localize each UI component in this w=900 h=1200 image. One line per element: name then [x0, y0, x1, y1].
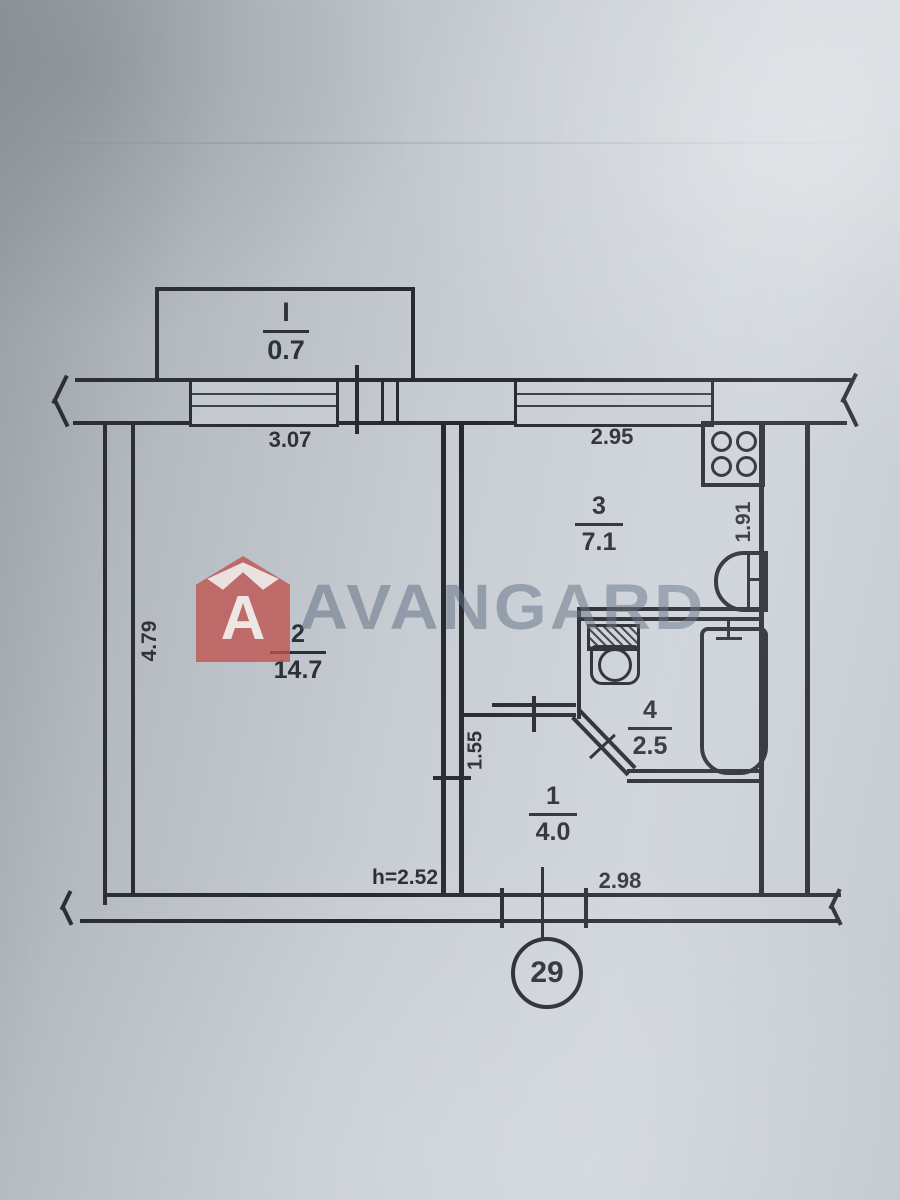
- room2-area: 14.7: [258, 656, 338, 685]
- sink-tap-line: [747, 578, 764, 581]
- wall-kitchen-bath-divider-b: [577, 617, 764, 621]
- stove-icon: [701, 421, 765, 487]
- wall-room2-kitchen-right-line: [459, 423, 464, 895]
- bath-faucet-bar: [716, 637, 742, 640]
- outer-wall-left-inner-line: [131, 423, 135, 895]
- dim-hall-wall: 1.55: [466, 717, 487, 785]
- room2-number: 2: [258, 620, 338, 649]
- window-glazing-line: [192, 393, 336, 395]
- floorplan-drawing: 29 I 0.7 2 14.7 3: [0, 0, 900, 1200]
- stove-burner-icon: [711, 456, 732, 477]
- window-kitchen: [514, 379, 714, 427]
- floorplan-photo: 29 I 0.7 2 14.7 3: [0, 0, 900, 1200]
- balcony-area: 0.7: [246, 335, 326, 366]
- entrance-door-axis: [541, 867, 544, 939]
- sink-divider-line: [747, 555, 750, 608]
- wall-break-bottom-right: [831, 888, 841, 926]
- fraction-line: [270, 651, 326, 654]
- balcony-label: I 0.7: [246, 297, 326, 366]
- outer-wall-right-line: [805, 423, 810, 895]
- kitchen-number: 3: [559, 492, 639, 521]
- balcony-door-jamb-a: [381, 380, 384, 423]
- apartment-number-badge: 29: [511, 937, 583, 1009]
- hallway-label: 1 4.0: [513, 782, 593, 847]
- wall-bathroom-left: [577, 607, 581, 719]
- wall-bathroom-bottom-b: [627, 779, 764, 783]
- hallway-area: 4.0: [513, 818, 593, 847]
- dim-ceiling-height: h=2.52: [356, 867, 438, 889]
- entrance-door-jamb-right: [584, 888, 588, 928]
- bottom-wall-outer-line: [80, 919, 838, 923]
- dim-window-left: 3.07: [250, 428, 330, 451]
- apartment-number: 29: [530, 956, 563, 990]
- kitchen-door-tick: [532, 696, 536, 732]
- dim-hall-width: 2.98: [580, 869, 660, 892]
- hallway-number: 1: [513, 782, 593, 811]
- window-glazing-line: [192, 405, 336, 407]
- balcony-number: I: [246, 297, 326, 328]
- outer-wall-left-line: [103, 423, 107, 905]
- bathroom-number: 4: [610, 696, 690, 725]
- fraction-line: [575, 523, 623, 526]
- window-dimension-tick: [355, 365, 359, 434]
- kitchen-label: 3 7.1: [559, 492, 639, 557]
- dim-window-right: 2.95: [572, 425, 652, 448]
- kitchen-area: 7.1: [559, 528, 639, 557]
- bathroom-label: 4 2.5: [610, 696, 690, 761]
- stove-burner-icon: [736, 431, 757, 452]
- stove-burner-icon: [711, 431, 732, 452]
- window-glazing-line: [517, 405, 711, 407]
- stove-burner-icon: [736, 456, 757, 477]
- room2-label: 2 14.7: [258, 620, 338, 685]
- bathroom-area: 2.5: [610, 732, 690, 761]
- fraction-line: [263, 330, 309, 333]
- toilet-bowl-icon: [598, 648, 632, 682]
- dim-room-depth: 4.79: [139, 601, 161, 681]
- fraction-line: [529, 813, 577, 816]
- wall-break-top-left: [56, 374, 66, 428]
- wall-room2-kitchen-left-line: [441, 423, 446, 895]
- wall-break-bottom-left: [62, 890, 72, 926]
- balcony-door-jamb-b: [396, 380, 399, 423]
- window-room2: [189, 379, 339, 427]
- wall-break-top-right: [845, 372, 855, 428]
- window-glazing-line: [517, 393, 711, 395]
- entrance-door-jamb-left: [500, 888, 504, 928]
- bathtub-icon: [700, 627, 768, 775]
- fraction-line: [628, 727, 672, 730]
- dim-kitchen-depth: 1.91: [733, 482, 755, 562]
